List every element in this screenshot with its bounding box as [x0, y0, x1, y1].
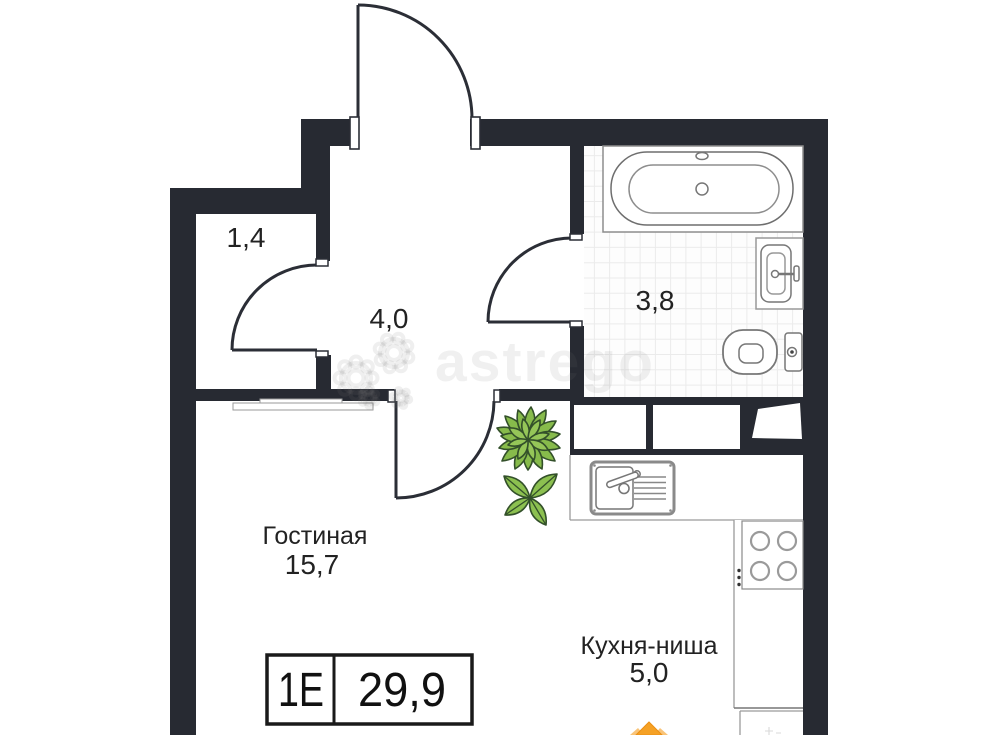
svg-text:4,0: 4,0 — [370, 303, 409, 334]
svg-text:1,4: 1,4 — [227, 222, 266, 253]
svg-text:astrego: astrego — [435, 330, 655, 394]
svg-text:Гостиная: Гостиная — [263, 522, 368, 550]
svg-text:5,0: 5,0 — [630, 657, 669, 688]
svg-text:Кухня-ниша: Кухня-ниша — [581, 632, 718, 660]
svg-text:3,8: 3,8 — [636, 285, 675, 316]
svg-text:15,7: 15,7 — [285, 549, 340, 580]
svg-text:1E: 1E — [278, 664, 324, 717]
svg-text:29,9: 29,9 — [358, 664, 446, 717]
